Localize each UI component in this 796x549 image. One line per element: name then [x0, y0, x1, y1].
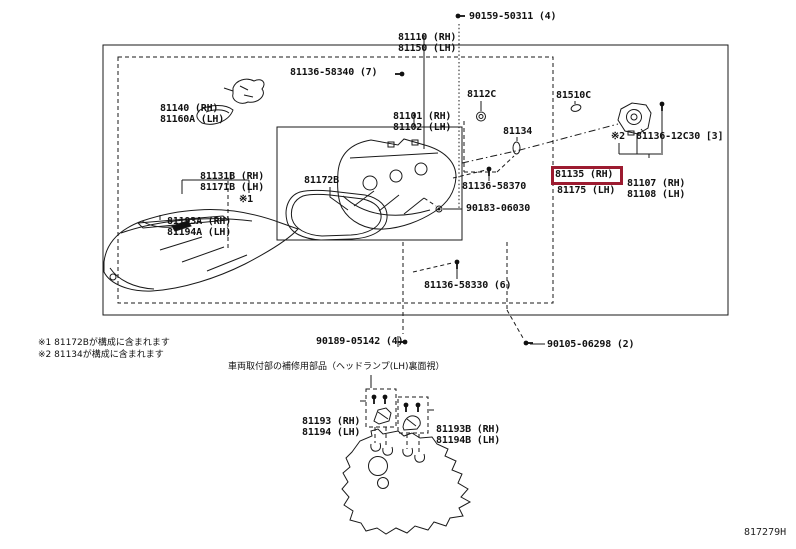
part-label-81175[interactable]: 81175 (LH) [557, 186, 615, 197]
footnote-2: ※2 81134が構成に含まれます [38, 350, 164, 361]
fastener-label-90105[interactable]: 90105-06298 (2) [547, 340, 634, 351]
diagram-linework [0, 0, 796, 549]
figure-code: 817279H [744, 528, 786, 538]
panel-hook-icons [371, 443, 425, 462]
gasket-drawing-81172B [286, 187, 387, 240]
part-label-81510C[interactable]: 81510C [556, 91, 591, 102]
fastener-label-58330[interactable]: 81136-58330 (6) [424, 281, 511, 292]
part-label-81135[interactable]: 81135 (RH) [555, 170, 613, 181]
screw-icon-58370 [487, 167, 492, 181]
part-label-81193[interactable]: 81193 (RH)81194 (LH) [302, 396, 360, 459]
part-label-81107[interactable]: 81107 (RH)81108 (LH) [627, 158, 685, 221]
bulb-icon-81134 [513, 137, 520, 154]
clip-icon-81193 [374, 408, 391, 424]
screw-icon-58330 [455, 260, 460, 279]
screw-icon-90159 [456, 14, 465, 19]
footnote-1: ※1 81172Bが構成に含まれます [38, 338, 170, 349]
parts-catalog-page: 81110 (RH)81150 (LH) 90159-50311 (4) 811… [0, 0, 796, 549]
screw-icon-12C30 [660, 102, 665, 153]
fastener-label-58370[interactable]: 81136-58370 [462, 182, 526, 193]
leader-58370-dashed [453, 170, 486, 178]
clip-box-81193 [366, 389, 396, 427]
leader-58330-dashed [413, 263, 452, 272]
part-label-81101[interactable]: 81101 (RH)81102 (LH) [393, 91, 451, 154]
part-label-81140[interactable]: 81140 (RH)81160A (LH) [160, 83, 224, 146]
nut-icon-90183 [436, 206, 462, 212]
leader-90183-dashed [424, 198, 436, 206]
clip-icon-81193B [403, 416, 420, 430]
fastener-label-12C30[interactable]: 81136-12C30 [3] [636, 132, 723, 143]
fastener-label-90183[interactable]: 90183-06030 [466, 204, 530, 215]
part-label-81193A[interactable]: 81193A (RH)81194A (LH) [167, 196, 231, 259]
part-label-81110[interactable]: 81110 (RH)81150 (LH) [398, 12, 456, 75]
selected-part-highlight[interactable]: 81135 (RH) [551, 166, 623, 185]
bulb-icon-81510C [570, 101, 581, 112]
bottom-section-title: 車両取付部の補修用部品（ヘッドランプ(LH)裏面視） [228, 362, 445, 373]
bolt-icon-90105 [524, 341, 545, 346]
fastener-label-90159[interactable]: 90159-50311 (4) [469, 12, 556, 23]
part-label-81172B[interactable]: 81172B [304, 176, 339, 187]
fastener-label-90189[interactable]: 90189-05142 (4) [316, 337, 403, 348]
fastener-label-58340[interactable]: 81136-58340 (7) [290, 68, 377, 79]
label-leaders-bottom [360, 401, 434, 410]
leader-to-leveling-unit [462, 124, 618, 163]
part-label-8112C[interactable]: 8112C [467, 90, 496, 101]
note-mark-1: ※1 [239, 195, 253, 206]
note-mark-2: ※2 [611, 132, 625, 143]
part-label-81193B[interactable]: 81193B (RH)81194B (LH) [436, 404, 500, 467]
part-label-81134[interactable]: 81134 [503, 127, 532, 138]
grommet-icon-8112C [477, 101, 486, 121]
clip-box-81193B [398, 397, 428, 433]
